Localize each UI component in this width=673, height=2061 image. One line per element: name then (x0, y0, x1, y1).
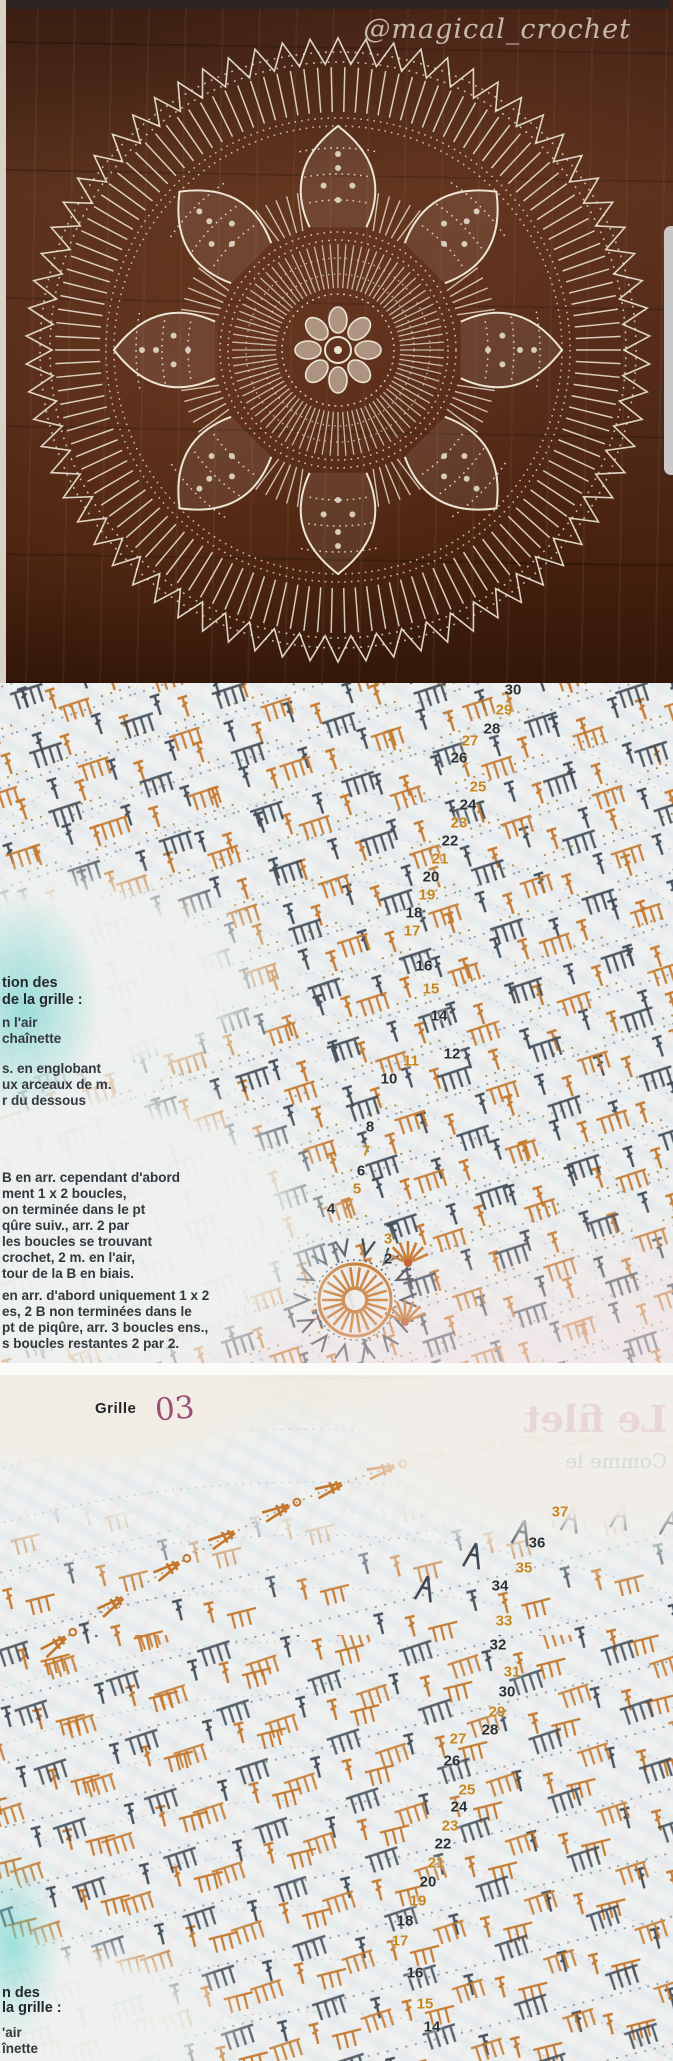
round-number: 32 (490, 1637, 507, 1654)
note-line: qûre suiv., arr. 2 par (2, 1218, 129, 1234)
round-number: 2 (384, 1251, 392, 1268)
note-line: r du dessous (2, 1093, 86, 1109)
round-number: 30 (499, 1684, 516, 1701)
note-line: tour de la B en biais. (2, 1266, 134, 1282)
round-number: 7 (362, 1143, 370, 1160)
round-number: 16 (416, 958, 433, 975)
left-edge-strip (0, 0, 6, 683)
note-line: les boucles se trouvant (2, 1234, 152, 1250)
note-line: n l'air (2, 1015, 37, 1031)
round-number: 36 (529, 1535, 546, 1552)
round-number: 17 (392, 1933, 409, 1950)
round-number: 15 (423, 981, 440, 998)
note-line: en arr. d'abord uniquement 1 x 2 (2, 1288, 209, 1304)
section-divider (0, 1363, 673, 1375)
round-number: 17 (404, 923, 421, 940)
round-number: 27 (462, 733, 479, 750)
watermark-handle: @magical_crochet (363, 14, 631, 45)
round-number: 4 (327, 1201, 335, 1218)
round-number: 25 (470, 779, 487, 796)
round-number: 20 (420, 1874, 437, 1891)
note-line: de la grille : (2, 992, 83, 1008)
round-number: 10 (381, 1071, 398, 1088)
round-number: 20 (423, 869, 440, 886)
round-number: 14 (431, 1008, 448, 1025)
round-number: 6 (357, 1163, 365, 1180)
grille-title: Grille 03 (95, 1391, 194, 1427)
right-edge-strip (664, 226, 673, 475)
round-number: 3 (384, 1231, 392, 1248)
round-number: 26 (451, 750, 468, 767)
round-number: 14 (424, 2019, 441, 2036)
top-border-bar (6, 0, 670, 9)
round-number: 21 (432, 851, 449, 868)
note-line: pt de piqûre, arr. 3 boucles ens., (2, 1320, 208, 1336)
round-number: 11 (403, 1053, 419, 1070)
round-number: 35 (516, 1560, 533, 1577)
round-number: 28 (484, 721, 501, 738)
bleed-line-2: Comme le (523, 1449, 667, 1473)
grille-number-handwritten: 03 (153, 1389, 195, 1428)
note-line: es, 2 B non terminées dans le (2, 1304, 192, 1320)
note-line: n des (2, 1985, 40, 2001)
pinterest-crochet-collage: @magical_crochet (0, 0, 673, 2061)
note-line: înette (2, 2041, 38, 2057)
note-line: s boucles restantes 2 par 2. (2, 1336, 179, 1352)
round-number: 8 (366, 1119, 374, 1136)
grille-label: Grille (95, 1400, 136, 1417)
bleed-through-text: Le filet Comme le (523, 1397, 667, 1473)
round-number: 18 (397, 1913, 414, 1930)
note-line: s. en englobant (2, 1061, 101, 1077)
round-number: 29 (489, 1704, 506, 1721)
round-number: 24 (451, 1799, 468, 1816)
chart-middle: tion desde la grille :n l'airchaînettes.… (0, 683, 673, 1363)
round-number: 18 (406, 905, 423, 922)
round-number: 21 (428, 1855, 445, 1872)
doily-lace-image (0, 0, 673, 683)
round-number: 12 (444, 1046, 461, 1063)
round-number: 23 (442, 1818, 459, 1835)
bleed-line-1: Le filet (523, 1397, 667, 1441)
note-line: chaînette (2, 1031, 61, 1047)
round-number: 19 (419, 887, 436, 904)
round-number: 23 (451, 815, 468, 832)
round-number: 22 (435, 1836, 452, 1853)
note-line: on terminée dans le pt (2, 1202, 145, 1218)
round-number: 33 (496, 1613, 513, 1630)
round-number: 34 (492, 1578, 509, 1595)
round-number: 29 (496, 702, 513, 719)
note-line: ment 1 x 2 boucles, (2, 1186, 127, 1202)
round-number: 28 (482, 1722, 499, 1739)
round-number: 16 (407, 1965, 424, 1982)
crochet-symbols-bottom (0, 1375, 673, 2061)
round-number: 15 (417, 1996, 434, 2013)
round-number: 24 (460, 797, 477, 814)
note-line: la grille : (2, 2000, 62, 2016)
round-number: 31 (504, 1664, 521, 1681)
round-number: 19 (410, 1893, 427, 1910)
round-number: 27 (450, 1731, 467, 1748)
round-number: 22 (442, 833, 459, 850)
note-line: ux arceaux de m. (2, 1077, 112, 1093)
chart-bottom: Le filet Comme le Grille 03 n desla gril… (0, 1375, 673, 2061)
note-line: B en arr. cependant d'abord (2, 1170, 180, 1186)
round-number: 37 (552, 1504, 569, 1521)
round-number: 30 (505, 683, 522, 699)
round-number: 26 (444, 1753, 461, 1770)
note-line: tion des (2, 975, 58, 991)
round-number: 25 (459, 1782, 476, 1799)
round-number: 5 (353, 1181, 361, 1198)
doily-photo: @magical_crochet (0, 0, 673, 683)
note-line: 'air (2, 2025, 22, 2041)
note-line: crochet, 2 m. en l'air, (2, 1250, 135, 1266)
